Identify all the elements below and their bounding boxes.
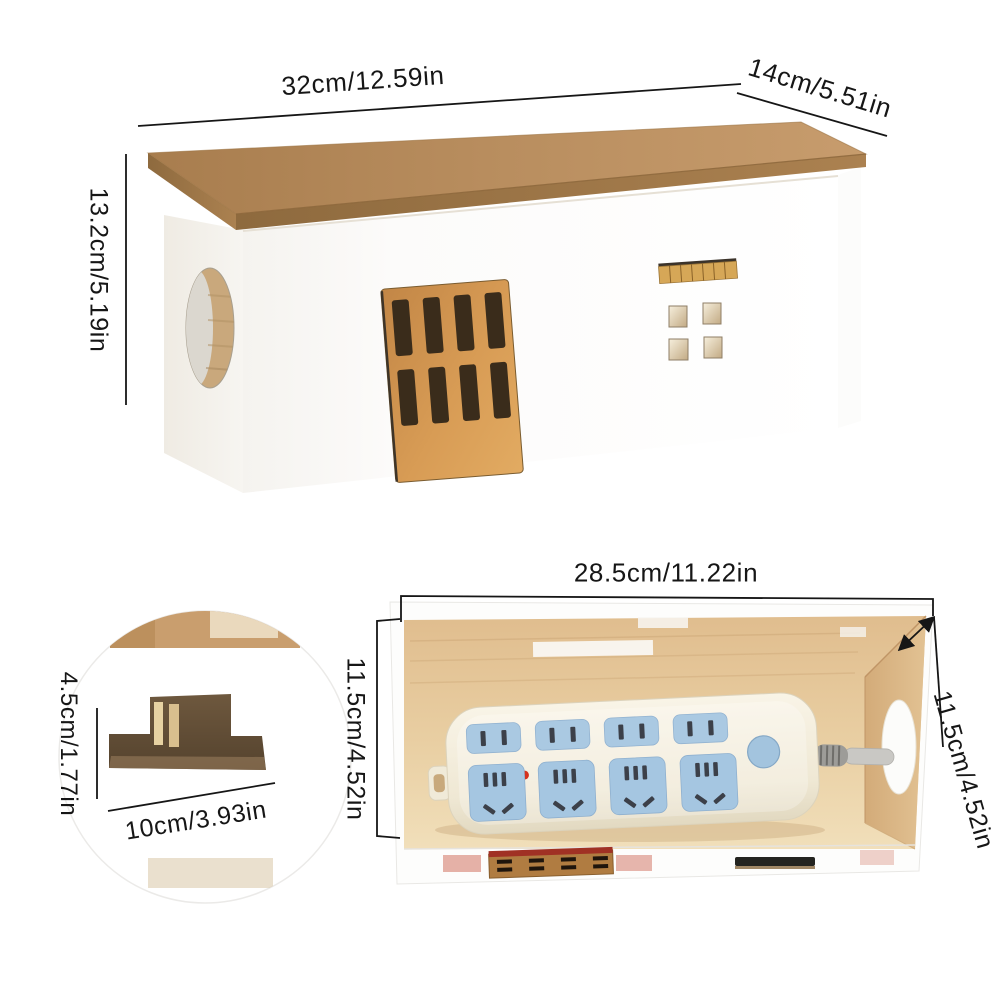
- house-door: [381, 279, 524, 482]
- vent-block: [489, 847, 614, 878]
- slot-divider-slat: [154, 702, 163, 745]
- power-strip: [425, 691, 821, 836]
- box-cable-hole: [882, 700, 916, 794]
- open-box-illustration: [390, 602, 933, 884]
- slot-detail-circle: [59, 606, 351, 903]
- power-switch-button: [747, 735, 780, 768]
- label-slot-height: 4.5cm/1.77in: [54, 672, 82, 817]
- label-inner-width: 28.5cm/11.22in: [574, 558, 758, 589]
- house-exterior-illustration: [148, 122, 866, 493]
- label-side-height: 13.2cm/5.19in: [84, 188, 113, 353]
- tape-strip-corner: [840, 627, 866, 637]
- house-right-face: [838, 167, 861, 428]
- label-inner-height: 11.5cm/4.52in: [341, 658, 370, 821]
- red-label-left: [443, 855, 481, 872]
- product-illustrations: [0, 0, 1000, 1000]
- slot-divider-slat: [169, 704, 179, 747]
- tape-strip-small: [638, 617, 688, 628]
- tape-strip: [533, 640, 653, 657]
- red-label-right: [616, 855, 652, 871]
- cable-slot: [735, 857, 815, 866]
- product-dimension-image: 32cm/12.59in 14cm/5.51in 13.2cm/5.19in 2…: [0, 0, 1000, 1000]
